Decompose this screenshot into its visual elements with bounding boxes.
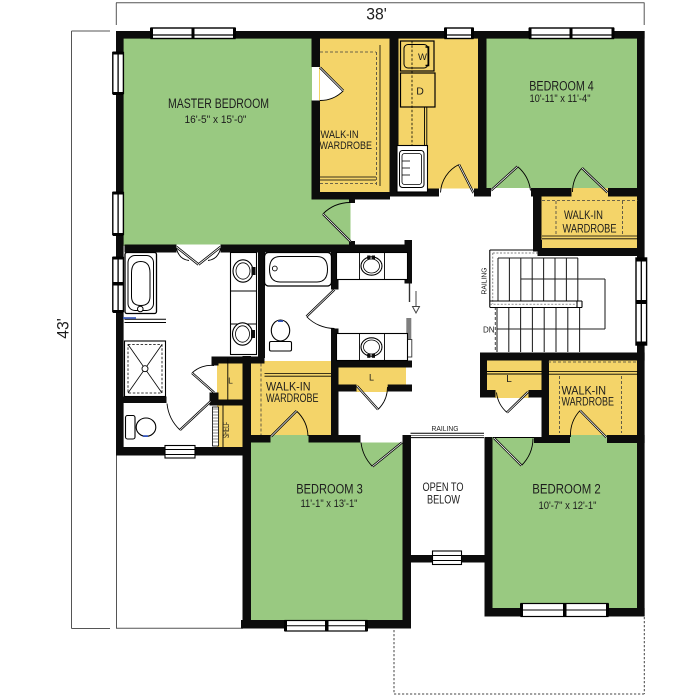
svg-text:16'-5" x 15'-0": 16'-5" x 15'-0"	[185, 114, 247, 126]
svg-text:10'-7" x 12'-1": 10'-7" x 12'-1"	[539, 500, 597, 512]
svg-text:D: D	[416, 86, 424, 98]
svg-text:OPEN TO: OPEN TO	[423, 482, 464, 494]
svg-text:L: L	[228, 376, 233, 386]
svg-text:RAILING: RAILING	[480, 267, 489, 294]
svg-text:11'-1" x 13'-1": 11'-1" x 13'-1"	[301, 498, 358, 510]
svg-text:BEDROOM 3: BEDROOM 3	[296, 482, 363, 497]
svg-text:WARDROBE: WARDROBE	[266, 393, 319, 405]
svg-text:L: L	[506, 374, 512, 385]
svg-text:BEDROOM 4: BEDROOM 4	[529, 79, 594, 94]
svg-text:WARDROBE: WARDROBE	[563, 224, 617, 236]
svg-text:SHELF: SHELF	[222, 422, 231, 438]
svg-text:RAILING: RAILING	[432, 424, 459, 433]
svg-text:L: L	[369, 373, 374, 383]
svg-text:BEDROOM 2: BEDROOM 2	[532, 482, 601, 497]
svg-text:38': 38'	[366, 5, 387, 23]
svg-text:43': 43'	[55, 318, 73, 339]
svg-text:DN: DN	[483, 326, 495, 335]
svg-text:WALK-IN: WALK-IN	[266, 382, 311, 394]
svg-text:WARDROBE: WARDROBE	[562, 397, 615, 409]
svg-text:BELOW: BELOW	[427, 495, 460, 507]
svg-text:W: W	[418, 52, 427, 63]
svg-text:WALK-IN: WALK-IN	[564, 210, 603, 222]
svg-text:10'-11" x 11'-4": 10'-11" x 11'-4"	[530, 93, 591, 105]
svg-text:MASTER BEDROOM: MASTER BEDROOM	[168, 96, 269, 111]
svg-text:WARDROBE: WARDROBE	[320, 140, 373, 152]
